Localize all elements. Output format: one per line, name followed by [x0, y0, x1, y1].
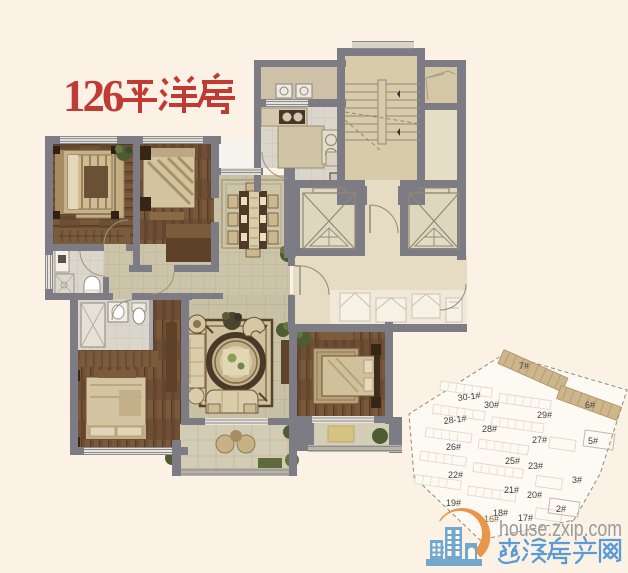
- svg-text:5#: 5#: [588, 436, 598, 446]
- svg-text:26#: 26#: [446, 442, 461, 452]
- svg-text:21#: 21#: [504, 485, 519, 495]
- svg-text:30#: 30#: [484, 400, 499, 410]
- svg-text:27#: 27#: [532, 435, 547, 445]
- svg-text:7#: 7#: [519, 361, 529, 371]
- svg-text:25#: 25#: [505, 456, 520, 466]
- svg-text:126: 126: [63, 71, 124, 121]
- svg-text:22#: 22#: [448, 470, 463, 480]
- svg-text:20#: 20#: [527, 490, 542, 500]
- svg-text:6#: 6#: [585, 400, 595, 410]
- svg-text:29#: 29#: [537, 410, 552, 420]
- svg-text:2#: 2#: [556, 504, 566, 514]
- svg-text:23#: 23#: [528, 461, 543, 471]
- svg-text:28#: 28#: [482, 424, 497, 434]
- svg-text:19#: 19#: [446, 498, 461, 508]
- svg-text:3#: 3#: [572, 475, 582, 485]
